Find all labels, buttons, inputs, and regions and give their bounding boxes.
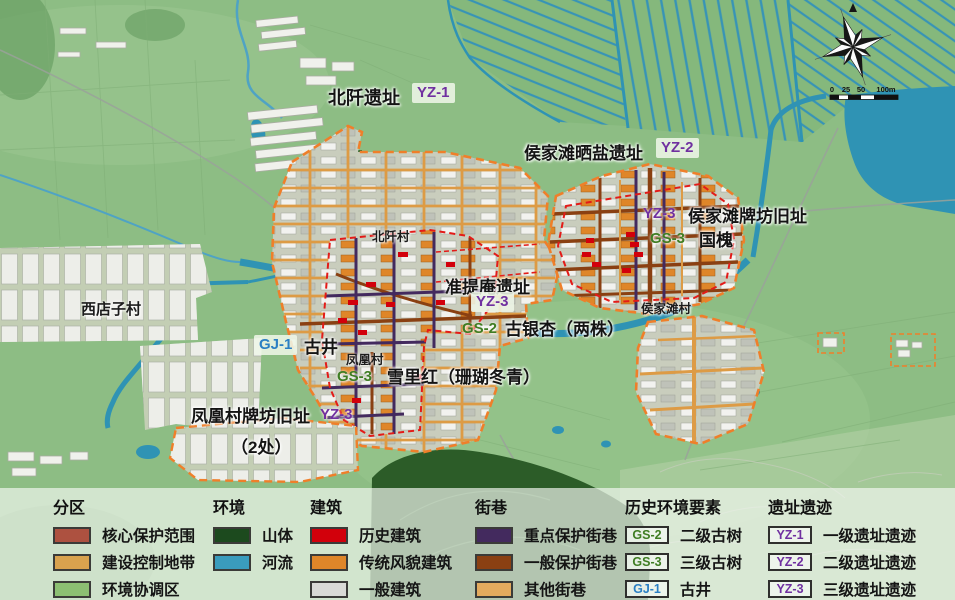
legend-panel: 分区 核心保护范围 建设控制地带 环境协调区 环境 山体 河流 建筑 历史建筑 … xyxy=(0,488,955,600)
badge-yz3-fh-paifang: YZ-3 xyxy=(320,406,353,423)
label-fh-paifang: 凤凰村牌坊旧址 xyxy=(191,402,310,427)
legend-item: 一般保护街巷 xyxy=(475,553,617,571)
legend-item-label: 二级古树 xyxy=(680,524,742,546)
scale-label-25: 25 xyxy=(842,85,850,94)
legend-item-label: 重点保护街巷 xyxy=(524,524,617,546)
badge-gs3-guohuai: GS-3 xyxy=(650,230,685,247)
badge-gs2: GS-2 xyxy=(625,526,669,544)
legend-item-label: 三级遗址遗迹 xyxy=(823,578,916,600)
label-hjt-paifang: 侯家滩牌坊旧址 xyxy=(688,202,807,227)
legend-item: 环境协调区 xyxy=(53,580,195,598)
village-houjiatan-south xyxy=(636,316,764,444)
legend-header: 分区 xyxy=(53,494,195,518)
badge-yz2-shaiyan: YZ-2 xyxy=(656,138,699,158)
swatch-other-street xyxy=(475,581,513,598)
legend-item: 河流 xyxy=(213,553,293,571)
swatch-traditional-building xyxy=(310,554,348,571)
village-label-fenghuang: 凤凰村 xyxy=(346,349,384,368)
legend-item: 重点保护街巷 xyxy=(475,526,617,544)
legend-section-buildings: 建筑 历史建筑 传统风貌建筑 一般建筑 xyxy=(310,494,452,600)
legend-section-historic-elements: 历史环境要素 GS-2 二级古树 GS-3 三级古树 GJ-1 古井 xyxy=(625,494,742,600)
legend-item: GS-3 三级古树 xyxy=(625,553,742,571)
label-beiqian-site: 北阡遗址 xyxy=(328,84,400,110)
badge-gj1-gujing: GJ-1 xyxy=(254,335,297,355)
legend-item: 传统风貌建筑 xyxy=(310,553,452,571)
swatch-general-building xyxy=(310,581,348,598)
legend-item: 一般建筑 xyxy=(310,580,452,598)
village-label-beiqian: 北阡村 xyxy=(372,226,410,245)
badge-yz1: YZ-1 xyxy=(768,526,812,544)
scale-label-100m: 100m xyxy=(876,85,896,94)
badge-yz3: YZ-3 xyxy=(768,580,812,598)
legend-header: 环境 xyxy=(213,494,293,518)
badge-gs3: GS-3 xyxy=(625,553,669,571)
legend-item-label: 建设控制地带 xyxy=(102,551,195,573)
label-xuelihong: 雪里红（珊瑚冬青） xyxy=(387,363,540,388)
label-shaiyan-site: 侯家滩晒盐遗址 xyxy=(524,139,643,164)
swatch-mountain xyxy=(213,527,251,544)
swatch-key-protected-street xyxy=(475,527,513,544)
legend-item: 建设控制地带 xyxy=(53,553,195,571)
legend-item-label: 山体 xyxy=(262,524,293,546)
legend-item: GS-2 二级古树 xyxy=(625,526,742,544)
legend-item-label: 一般建筑 xyxy=(359,578,421,600)
legend-section-zoning: 分区 核心保护范围 建设控制地带 环境协调区 xyxy=(53,494,195,600)
legend-item: GJ-1 古井 xyxy=(625,580,742,598)
swatch-general-protected-street xyxy=(475,554,513,571)
legend-header: 遗址遗迹 xyxy=(768,494,916,518)
badge-gj1: GJ-1 xyxy=(625,580,669,598)
legend-item-label: 核心保护范围 xyxy=(102,524,195,546)
legend-item: 核心保护范围 xyxy=(53,526,195,544)
legend-item-label: 一般保护街巷 xyxy=(524,551,617,573)
badge-gs2-yinxing: GS-2 xyxy=(462,320,497,337)
badge-gs3-xuelihong: GS-3 xyxy=(337,368,372,385)
swatch-core-protection xyxy=(53,527,91,544)
badge-yz3-zhuntian: YZ-3 xyxy=(471,292,514,312)
village-label-houjiatan: 侯家滩村 xyxy=(641,298,691,317)
legend-item: 历史建筑 xyxy=(310,526,452,544)
legend-item-label: 河流 xyxy=(262,551,293,573)
scale-label-50: 50 xyxy=(857,85,865,94)
legend-item-label: 传统风貌建筑 xyxy=(359,551,452,573)
legend-header: 街巷 xyxy=(475,494,617,518)
legend-item: YZ-1 一级遗址遗迹 xyxy=(768,526,916,544)
legend-item-label: 环境协调区 xyxy=(102,578,180,600)
swatch-river xyxy=(213,554,251,571)
legend-header: 建筑 xyxy=(310,494,452,518)
swatch-historic-building xyxy=(310,527,348,544)
legend-item-label: 历史建筑 xyxy=(359,524,421,546)
swatch-construction-control xyxy=(53,554,91,571)
badge-yz2: YZ-2 xyxy=(768,553,812,571)
legend-item: YZ-3 三级遗址遗迹 xyxy=(768,580,916,598)
legend-item: 其他街巷 xyxy=(475,580,617,598)
badge-yz1-beiqian: YZ-1 xyxy=(412,83,455,103)
legend-item-label: 三级古树 xyxy=(680,551,742,573)
legend-item-label: 古井 xyxy=(680,578,711,600)
label-fh-paifang-count: （2处） xyxy=(231,433,291,458)
badge-yz3-paifang: YZ-3 xyxy=(643,205,676,222)
legend-header: 历史环境要素 xyxy=(625,494,742,518)
scale-label-0: 0 xyxy=(830,85,834,94)
village-label-xidianzi: 西店子村 xyxy=(81,298,141,319)
legend-section-environment: 环境 山体 河流 xyxy=(213,494,293,580)
legend-item-label: 其他街巷 xyxy=(524,578,586,600)
legend-section-streets: 街巷 重点保护街巷 一般保护街巷 其他街巷 xyxy=(475,494,617,600)
label-gujing: 古井 xyxy=(304,333,338,358)
legend-item: 山体 xyxy=(213,526,293,544)
legend-section-sites: 遗址遗迹 YZ-1 一级遗址遗迹 YZ-2 二级遗址遗迹 YZ-3 三级遗址遗迹 xyxy=(768,494,916,600)
swatch-environment-coordination xyxy=(53,581,91,598)
legend-item-label: 一级遗址遗迹 xyxy=(823,524,916,546)
heritage-protection-map: 0 25 50 100m 北阡遗址 YZ-1 侯家滩晒盐遗址 YZ-2 YZ-3… xyxy=(0,0,955,600)
label-guyinxing: 古银杏（两株） xyxy=(505,315,624,340)
label-guohuai: 国槐 xyxy=(699,226,733,251)
legend-item: YZ-2 二级遗址遗迹 xyxy=(768,553,916,571)
legend-item-label: 二级遗址遗迹 xyxy=(823,551,916,573)
